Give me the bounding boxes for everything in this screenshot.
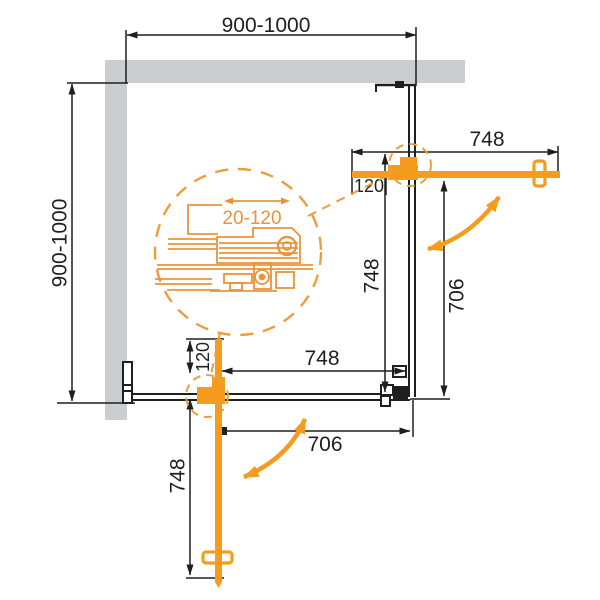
bottom-door-bar xyxy=(215,339,222,582)
top-door-swing-arrow xyxy=(428,197,499,249)
top-pivot-door xyxy=(352,157,560,249)
overall-width-label: 900-1000 xyxy=(222,14,311,37)
bottom-opening-width-label: 706 xyxy=(307,433,342,456)
roller-adjustment-range-label: 20-120 xyxy=(222,208,281,229)
bottom-door-width-label: 748 xyxy=(304,347,339,370)
right-opening-width-label: 706 xyxy=(446,278,469,313)
bottom-glass-panel xyxy=(123,362,410,403)
bottom-door-open-length-label: 748 xyxy=(167,458,190,493)
bracket-block xyxy=(395,81,404,88)
shower-enclosure-plan-diagram: 900-1000 900-1000 748 12 xyxy=(0,0,600,600)
top-door-width-label: 748 xyxy=(469,128,504,151)
wall-profile-left xyxy=(123,362,132,403)
right-glass-panel xyxy=(375,81,416,397)
right-panel-width-label: 748 xyxy=(361,258,384,293)
corner-block xyxy=(394,387,407,398)
wall-top xyxy=(105,60,465,83)
detail-circle xyxy=(155,169,321,335)
walls xyxy=(105,60,465,420)
detail-callout xyxy=(155,144,431,417)
overall-depth-label: 900-1000 xyxy=(49,199,72,288)
diagram-canvas: 900-1000 900-1000 748 12 xyxy=(0,0,600,600)
bottom-door-pivot-offset-label: 120 xyxy=(193,342,213,372)
bottom-door-swing-arrow xyxy=(244,419,305,477)
